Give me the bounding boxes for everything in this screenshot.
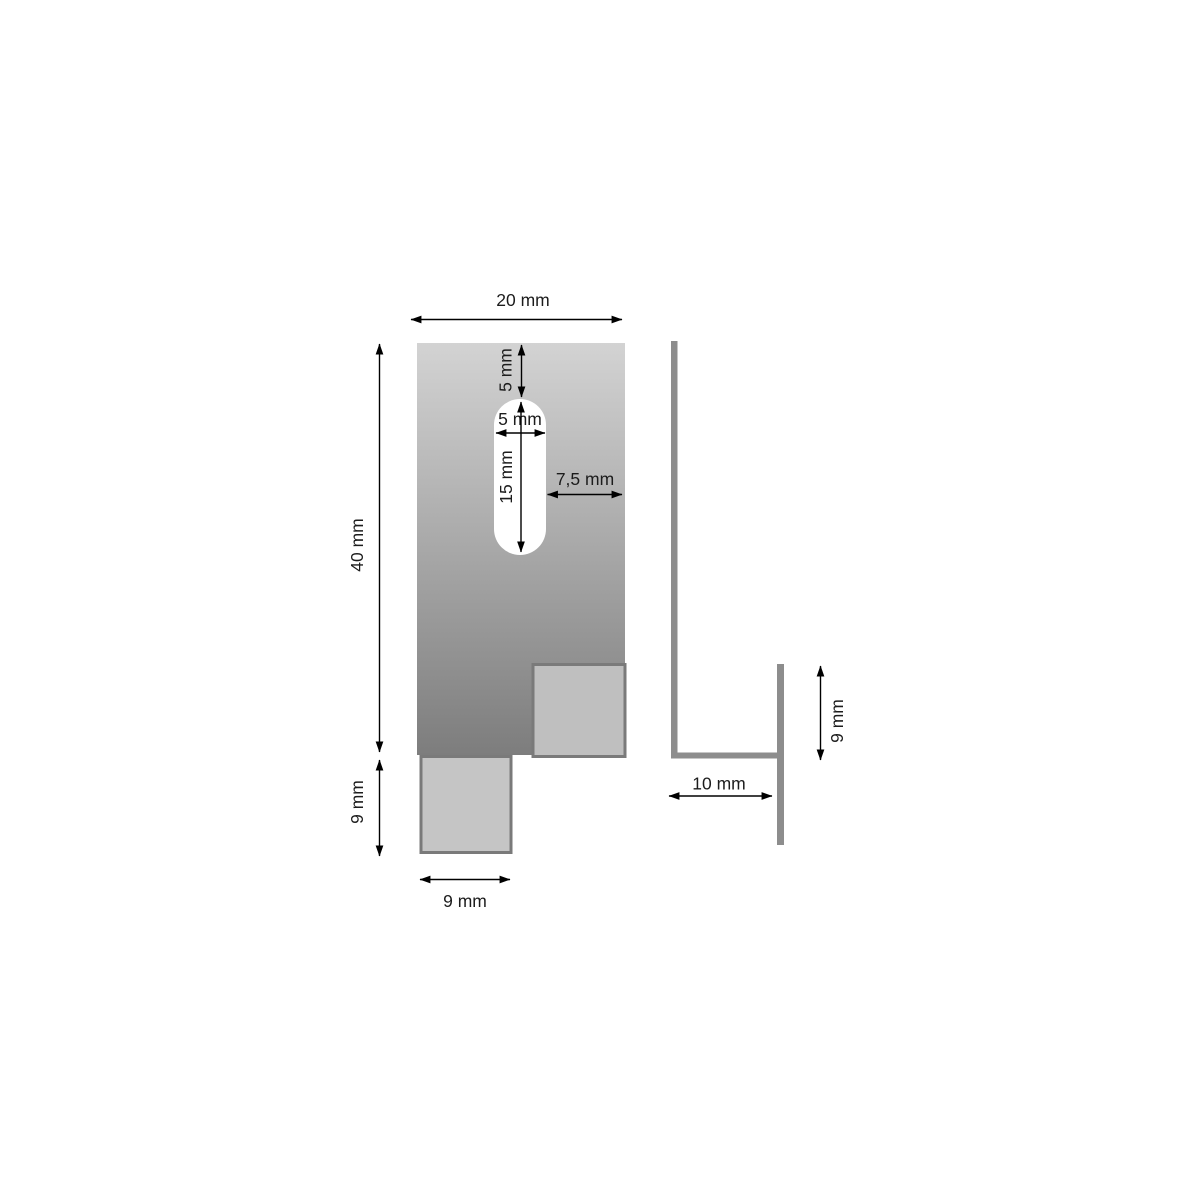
technical-drawing: 20 mm 40 mm 9 mm 9 mm 5 mm 5 mm [0, 0, 1200, 1200]
dim-label-plate-width: 20 mm [496, 290, 549, 310]
front-view: 20 mm 40 mm 9 mm 9 mm 5 mm 5 mm [347, 290, 625, 911]
drawing-canvas: 20 mm 40 mm 9 mm 9 mm 5 mm 5 mm [0, 0, 1200, 1200]
side-view: 10 mm 9 mm [669, 341, 847, 845]
dim-label-slot-length: 15 mm [496, 450, 516, 503]
dim-label-slot-to-edge: 7,5 mm [556, 469, 614, 489]
dim-label-side-leg: 10 mm [692, 774, 745, 794]
tab-right [533, 665, 625, 757]
profile-flange [777, 664, 784, 845]
dim-label-slot-width: 5 mm [498, 409, 542, 429]
dim-side-leg: 10 mm [669, 774, 772, 797]
dim-label-side-flange: 9 mm [827, 699, 847, 743]
dim-label-tab-width: 9 mm [443, 891, 487, 911]
dim-plate-height: 40 mm [347, 344, 380, 752]
profile-web [671, 341, 678, 758]
profile-leg [671, 753, 784, 759]
dim-label-tab-height: 9 mm [347, 780, 367, 824]
dim-tab-height: 9 mm [347, 760, 380, 856]
dim-side-flange: 9 mm [821, 666, 848, 760]
dim-label-slot-top-offset: 5 mm [496, 348, 516, 392]
dim-label-plate-height: 40 mm [347, 518, 367, 571]
dim-plate-width: 20 mm [411, 290, 622, 320]
dim-tab-width: 9 mm [420, 880, 510, 912]
tab-bottom-left [421, 757, 511, 853]
